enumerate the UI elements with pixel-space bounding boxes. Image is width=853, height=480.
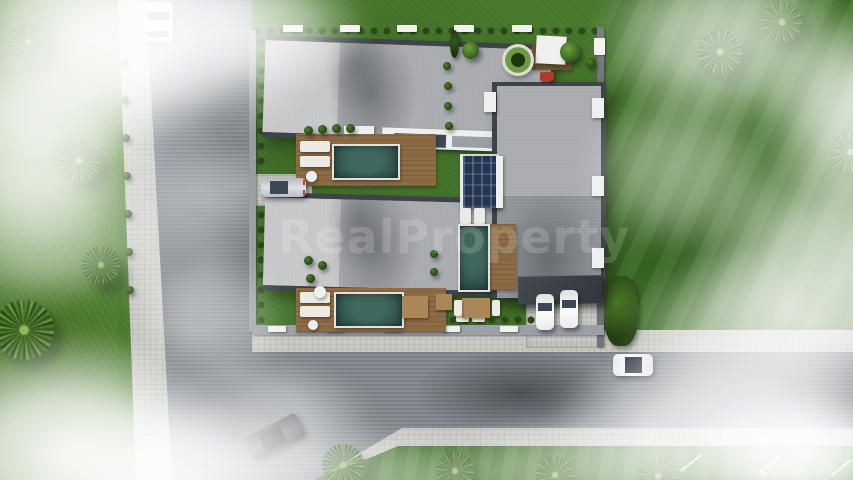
villa-1-pool [332, 144, 400, 180]
round-tree [560, 42, 580, 62]
parked-car [560, 290, 578, 328]
parked-car [536, 294, 554, 330]
watermark: RealProperty [278, 210, 630, 264]
awning [484, 92, 496, 112]
potted-plant [318, 125, 327, 134]
sun-lounger [454, 300, 462, 316]
wooden-platform [402, 296, 428, 318]
car-taillight [303, 180, 305, 185]
shrub [430, 268, 438, 276]
round-tree [462, 42, 479, 59]
shrub [444, 102, 452, 110]
patio-table [314, 286, 326, 298]
lawn-mower [540, 72, 554, 81]
skylight-trim [496, 156, 503, 208]
patio-table [308, 320, 318, 330]
car-windshield [538, 303, 552, 311]
shrub [444, 82, 452, 90]
car-glass-roof [270, 181, 288, 194]
fence-cap [397, 25, 417, 32]
shrub [445, 122, 453, 130]
wooden-table [462, 298, 490, 318]
potted-plant [332, 124, 341, 133]
sun-lounger [300, 156, 330, 167]
potted-plant [306, 274, 315, 283]
fence-cap [500, 326, 518, 332]
potted-plant [304, 126, 313, 135]
potted-plant [346, 124, 355, 133]
wooden-table [436, 294, 452, 310]
flower-bed [502, 44, 534, 76]
shrub [443, 62, 451, 70]
car-windshield [562, 300, 576, 308]
patio-table [306, 171, 317, 182]
aerial-render-scene: RealProperty [0, 0, 853, 480]
fence-cap [512, 25, 532, 32]
silver-car [261, 178, 306, 197]
sun-lounger [300, 141, 330, 152]
car-taillight [303, 190, 305, 195]
fence-cap [454, 25, 474, 32]
villa-2-pool [334, 292, 404, 328]
cypress-tree [450, 30, 459, 58]
skylight-solar-structure [460, 154, 499, 208]
sun-lounger [300, 306, 330, 317]
cloud [575, 85, 785, 255]
sun-lounger [492, 300, 500, 316]
